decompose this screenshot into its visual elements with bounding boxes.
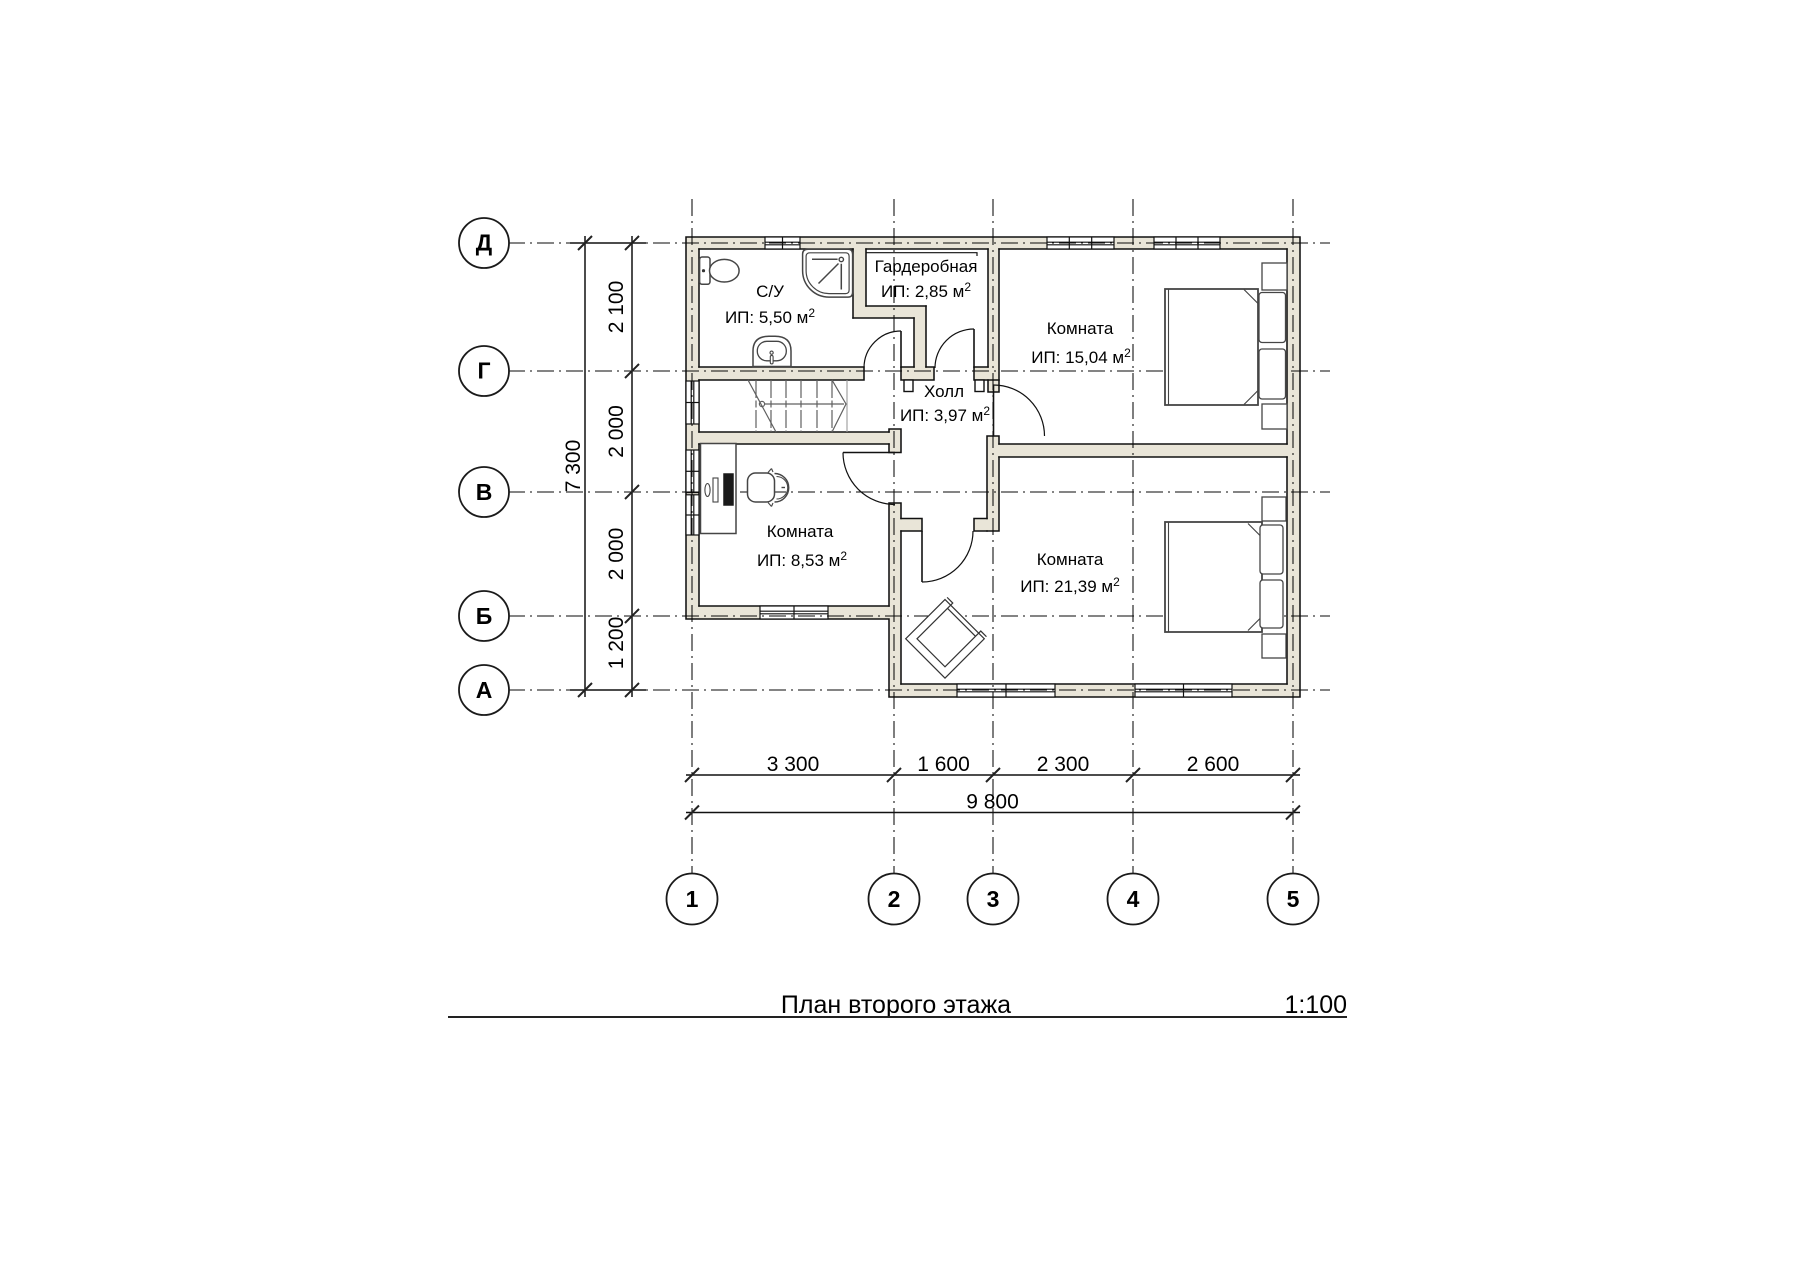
- svg-text:2: 2: [888, 886, 901, 912]
- svg-text:2 000: 2 000: [605, 528, 628, 581]
- svg-text:План второго этажа: План второго этажа: [781, 991, 1011, 1019]
- svg-text:В: В: [476, 479, 493, 505]
- svg-text:Комната: Комната: [767, 522, 834, 541]
- svg-text:1 200: 1 200: [605, 617, 628, 670]
- svg-text:Г: Г: [477, 358, 490, 384]
- svg-text:4: 4: [1127, 886, 1140, 912]
- svg-text:2 000: 2 000: [605, 405, 628, 458]
- svg-text:1: 1: [686, 886, 699, 912]
- svg-text:2 100: 2 100: [605, 281, 628, 334]
- svg-text:А: А: [476, 677, 493, 703]
- svg-text:ИП: 5,50 м2: ИП: 5,50 м2: [725, 306, 815, 327]
- svg-text:Д: Д: [476, 230, 492, 256]
- svg-text:7 300: 7 300: [562, 440, 585, 493]
- svg-text:ИП: 8,53 м2: ИП: 8,53 м2: [757, 549, 847, 570]
- svg-text:С/У: С/У: [756, 282, 784, 301]
- svg-text:2 300: 2 300: [1037, 753, 1090, 776]
- svg-text:Комната: Комната: [1047, 319, 1114, 338]
- svg-text:Комната: Комната: [1037, 550, 1104, 569]
- svg-text:ИП: 2,85 м2: ИП: 2,85 м2: [881, 280, 971, 301]
- svg-text:1 600: 1 600: [917, 753, 970, 776]
- svg-text:3: 3: [987, 886, 1000, 912]
- svg-text:ИП: 21,39 м2: ИП: 21,39 м2: [1020, 575, 1120, 596]
- svg-text:Гардеробная: Гардеробная: [875, 257, 978, 276]
- svg-text:9 800: 9 800: [966, 791, 1019, 814]
- svg-text:ИП: 15,04 м2: ИП: 15,04 м2: [1031, 346, 1131, 367]
- svg-text:5: 5: [1287, 886, 1300, 912]
- svg-text:3 300: 3 300: [767, 753, 820, 776]
- svg-text:ИП: 3,97 м2: ИП: 3,97 м2: [900, 404, 990, 425]
- svg-text:2 600: 2 600: [1187, 753, 1240, 776]
- svg-text:Холл: Холл: [924, 382, 964, 401]
- svg-text:1:100: 1:100: [1284, 991, 1347, 1019]
- svg-text:Б: Б: [476, 603, 493, 629]
